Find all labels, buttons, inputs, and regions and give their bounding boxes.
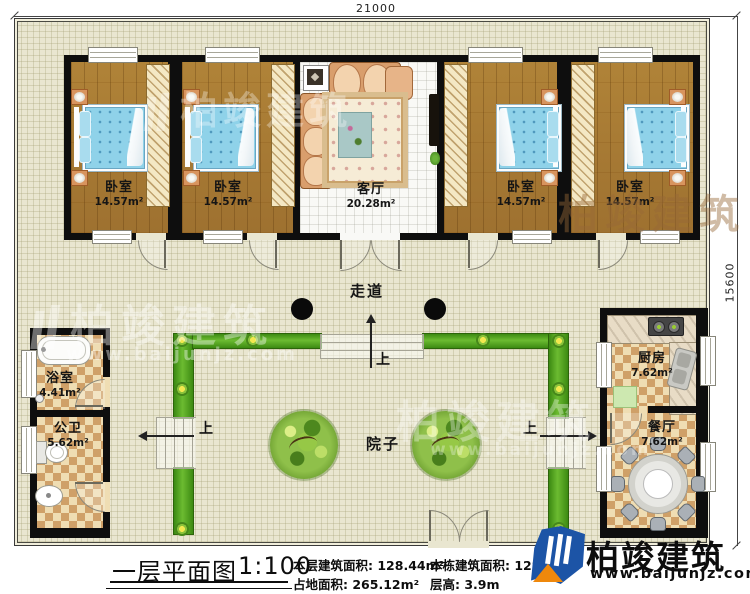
door-leaf (598, 240, 600, 268)
door-leaf (468, 240, 470, 268)
wall (64, 55, 71, 240)
up-label: 上 (199, 418, 213, 438)
blanket-fold (238, 108, 254, 166)
stat-storey-height: 层高: 3.9m (430, 574, 500, 593)
stove (648, 317, 684, 336)
title-underline (106, 588, 292, 589)
room-label-bedroom-3: 卧室 14.57m² (486, 181, 556, 208)
burner (668, 321, 680, 333)
door-leaf (340, 240, 342, 269)
nightstand (669, 89, 686, 105)
dimension-line-right (737, 16, 738, 546)
window (640, 230, 680, 244)
basin-drain (46, 493, 51, 498)
pillow (547, 111, 559, 137)
pillow (190, 111, 202, 137)
room-label-corridor: 走道 (332, 283, 402, 300)
flower (476, 333, 490, 347)
cutting-board (613, 386, 637, 408)
nightstand (541, 89, 558, 105)
pillow (675, 137, 687, 163)
flower (246, 333, 260, 347)
room-label-dining: 餐厅 7.62m² (627, 421, 697, 448)
window (598, 47, 653, 63)
pillow (79, 137, 91, 163)
window (468, 47, 523, 63)
window (596, 446, 612, 492)
blanket-fold (499, 108, 515, 166)
wall (30, 328, 110, 335)
title-underline (110, 581, 288, 583)
window (700, 336, 716, 386)
direction-arrow (146, 435, 194, 437)
wall (557, 62, 571, 233)
window (92, 230, 132, 244)
door-opening (136, 233, 166, 240)
room-label-bedroom-1: 卧室 14.57m² (84, 181, 154, 208)
window (596, 342, 612, 388)
pillow (675, 111, 687, 137)
arrow-head (588, 431, 597, 441)
arrow-head (138, 431, 147, 441)
door-leaf (275, 240, 277, 268)
door-opening (247, 233, 277, 240)
room-label-kitchen: 厨房 7.62m² (617, 352, 687, 379)
room-label-bathroom: 浴室 4.41m² (25, 372, 95, 399)
window (512, 230, 552, 244)
brand-url: www.baijunjz.com (590, 566, 750, 582)
flower (175, 333, 189, 347)
flower (175, 382, 189, 396)
wash-basin (35, 485, 63, 507)
burner (653, 321, 665, 333)
dimension-line-top (14, 16, 737, 17)
flower (552, 334, 566, 348)
blanket-fold (127, 108, 143, 166)
wall (648, 406, 696, 413)
door-leaf (164, 240, 166, 268)
stat-site-area: 占地面积: 265.12m² (293, 574, 419, 593)
door-opening (468, 233, 498, 240)
dimension-right-value: 15600 (724, 256, 737, 310)
up-label: 上 (376, 349, 390, 369)
window (205, 47, 260, 63)
steps (546, 417, 586, 469)
chair (611, 476, 625, 492)
arrow-head (366, 314, 376, 323)
room-label-bedroom-4: 卧室 14.57m² (595, 181, 665, 208)
faucet (41, 347, 46, 352)
wall (30, 410, 110, 417)
direction-arrow (370, 322, 372, 368)
door-opening (596, 233, 626, 240)
tree (412, 411, 480, 479)
nightstand (183, 89, 200, 105)
door-leaf (75, 482, 103, 484)
pillow (547, 137, 559, 163)
wall (600, 308, 708, 315)
steps (156, 417, 196, 469)
up-label: 上 (523, 418, 537, 438)
chair (691, 476, 705, 492)
room-label-courtyard: 院子 (348, 436, 418, 453)
wardrobe (444, 64, 468, 207)
double-door-opening (340, 233, 400, 240)
wardrobe (271, 64, 295, 207)
dimension-top-value: 21000 (348, 2, 404, 15)
dining-table-center (643, 469, 673, 499)
flower (552, 382, 566, 396)
wall (693, 55, 700, 240)
window (203, 230, 243, 244)
pillow (79, 111, 91, 137)
tree (270, 411, 338, 479)
tv (429, 94, 439, 146)
steps (320, 334, 424, 359)
direction-arrow (540, 435, 588, 437)
chair (650, 517, 666, 531)
nightstand (669, 170, 686, 186)
nightstand (71, 89, 88, 105)
floor-plan-canvas: 21000 15600 (0, 0, 750, 594)
coffee-table (338, 112, 372, 158)
window (88, 47, 138, 63)
bathtub (37, 336, 91, 365)
bathtub-inner (42, 340, 86, 360)
door-leaf (610, 413, 612, 443)
room-label-toilet: 公卫 5.62m² (33, 422, 103, 449)
wall (30, 528, 110, 538)
gate-opening (428, 541, 489, 548)
wall (168, 62, 182, 233)
wardrobe (571, 64, 595, 207)
pillow (190, 137, 202, 163)
wall (437, 62, 444, 233)
column (291, 298, 313, 320)
speaker (303, 65, 329, 91)
stat-floor-area: 本层建筑面积: 128.44m² (293, 555, 444, 574)
brand-logo-icon (531, 526, 585, 584)
room-label-bedroom-2: 卧室 14.57m² (193, 181, 263, 208)
flower (175, 522, 189, 536)
column (424, 298, 446, 320)
plant (430, 152, 440, 165)
door-leaf (398, 240, 400, 269)
door-leaf (75, 405, 103, 407)
blanket-fold (627, 108, 643, 166)
room-label-living: 客厅 20.28m² (336, 183, 406, 210)
